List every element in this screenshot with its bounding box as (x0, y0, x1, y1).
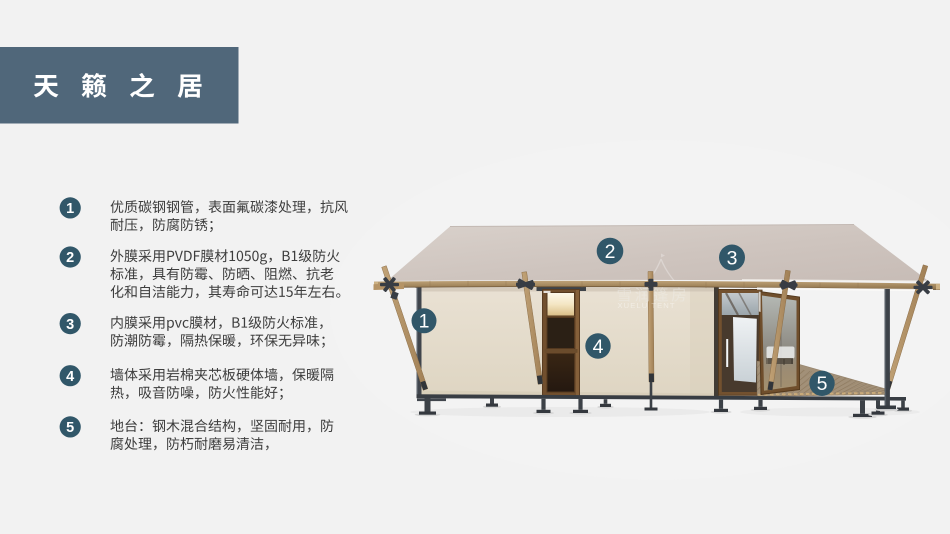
svg-text:3: 3 (66, 317, 74, 333)
svg-text:2: 2 (66, 250, 74, 266)
svg-text:4: 4 (593, 336, 604, 358)
svg-text:4: 4 (66, 369, 74, 385)
svg-text:1: 1 (66, 201, 74, 217)
svg-text:5: 5 (66, 420, 74, 436)
svg-text:3: 3 (727, 247, 738, 269)
svg-text:5: 5 (817, 373, 828, 395)
svg-text:XUELU TENT: XUELU TENT (618, 301, 676, 310)
svg-text:2: 2 (605, 241, 616, 263)
svg-text:1: 1 (419, 311, 430, 333)
